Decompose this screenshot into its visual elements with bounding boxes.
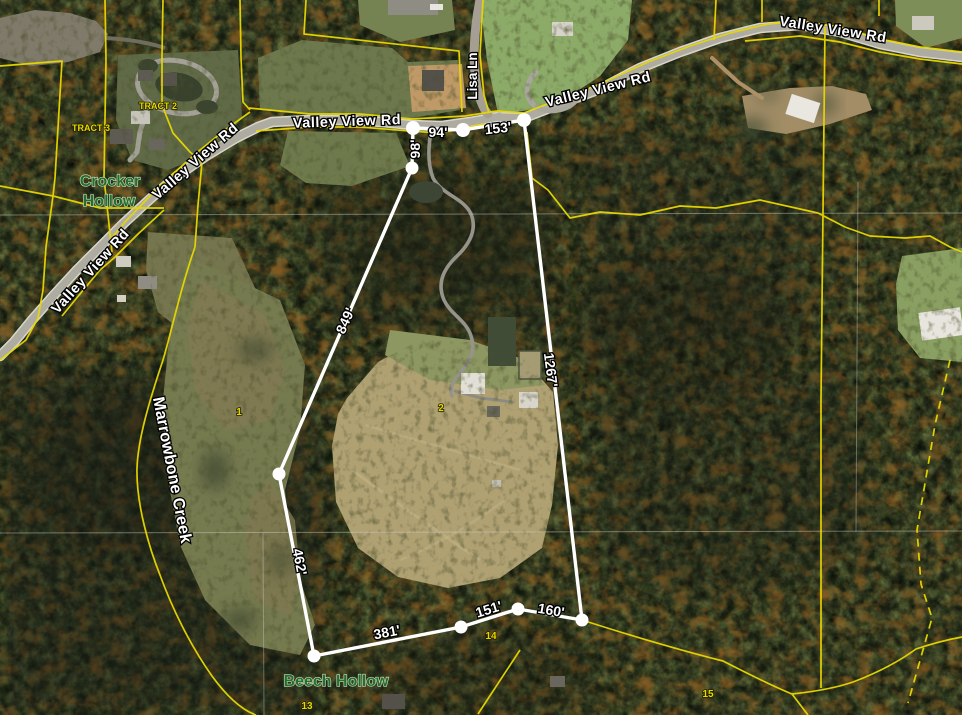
svg-text:TRACT 3: TRACT 3	[72, 123, 110, 133]
svg-text:Lisa Ln: Lisa Ln	[465, 52, 480, 99]
svg-text:94': 94'	[429, 124, 448, 140]
svg-text:153': 153'	[484, 119, 512, 138]
svg-text:1: 1	[236, 407, 242, 418]
svg-text:13: 13	[301, 701, 313, 712]
svg-text:15: 15	[702, 689, 714, 700]
svg-text:Crocker: Crocker	[80, 173, 140, 190]
svg-text:98': 98'	[407, 140, 423, 159]
svg-text:TRACT 2: TRACT 2	[139, 101, 177, 111]
svg-text:2: 2	[438, 403, 444, 414]
svg-text:Beech Hollow: Beech Hollow	[284, 673, 389, 690]
svg-text:Hollow: Hollow	[83, 193, 136, 210]
svg-text:14: 14	[485, 631, 497, 642]
